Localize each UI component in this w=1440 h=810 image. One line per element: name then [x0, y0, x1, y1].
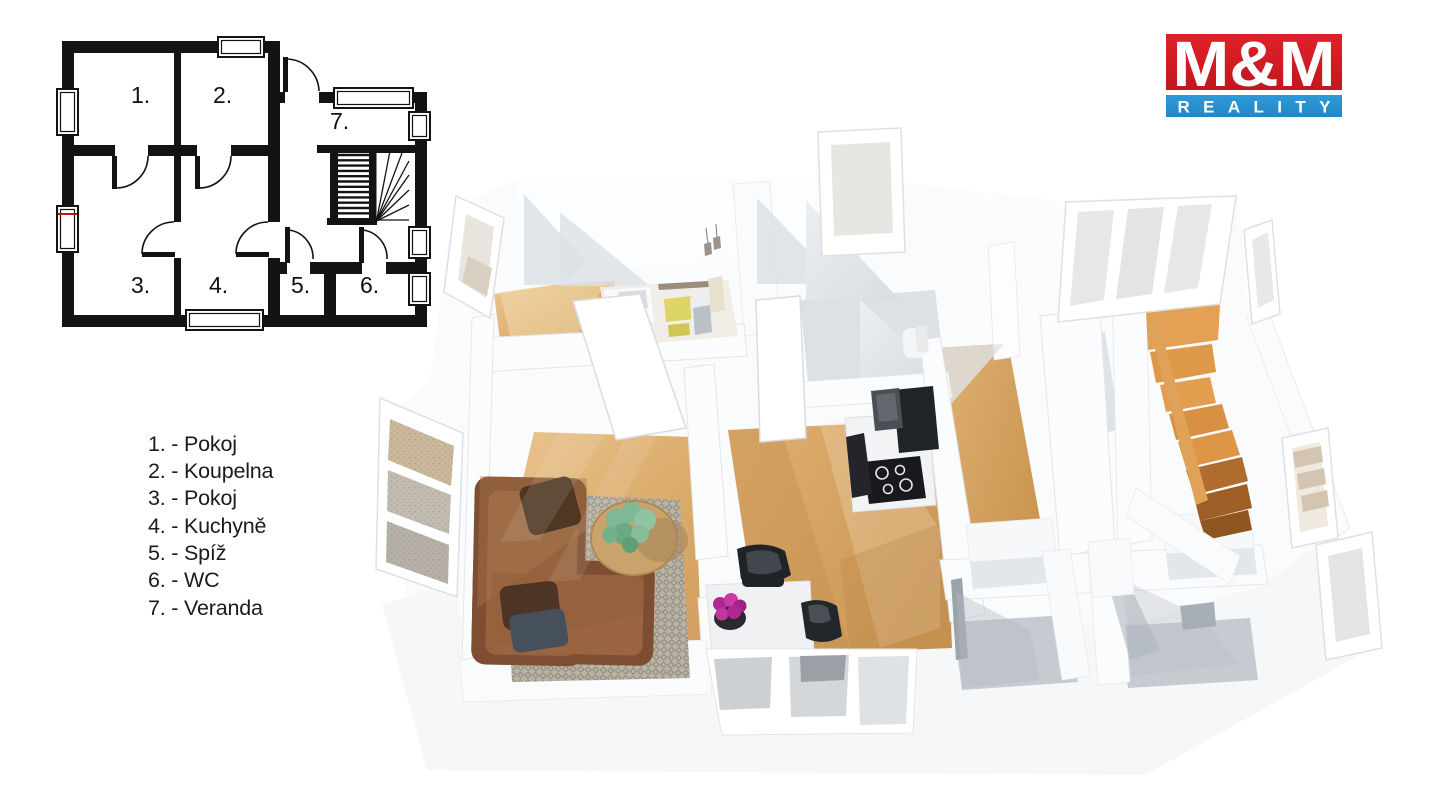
svg-text:7.: 7. — [330, 108, 349, 134]
svg-text:6. - WC: 6. - WC — [148, 568, 219, 592]
svg-text:3.: 3. — [131, 272, 150, 298]
svg-text:1. - Pokoj: 1. - Pokoj — [148, 432, 237, 456]
svg-text:M&M: M&M — [1173, 28, 1336, 100]
svg-text:6.: 6. — [360, 272, 379, 298]
svg-text:2. - Koupelna: 2. - Koupelna — [148, 459, 274, 483]
svg-text:4. - Kuchyně: 4. - Kuchyně — [148, 514, 266, 538]
svg-text:1.: 1. — [131, 82, 150, 108]
svg-text:4.: 4. — [209, 272, 228, 298]
svg-text:2.: 2. — [213, 82, 232, 108]
svg-text:3. - Pokoj: 3. - Pokoj — [148, 486, 237, 510]
svg-text:7. - Veranda: 7. - Veranda — [148, 596, 263, 620]
svg-text:5.: 5. — [291, 272, 310, 298]
svg-text:5. - Spíž: 5. - Spíž — [148, 541, 226, 565]
